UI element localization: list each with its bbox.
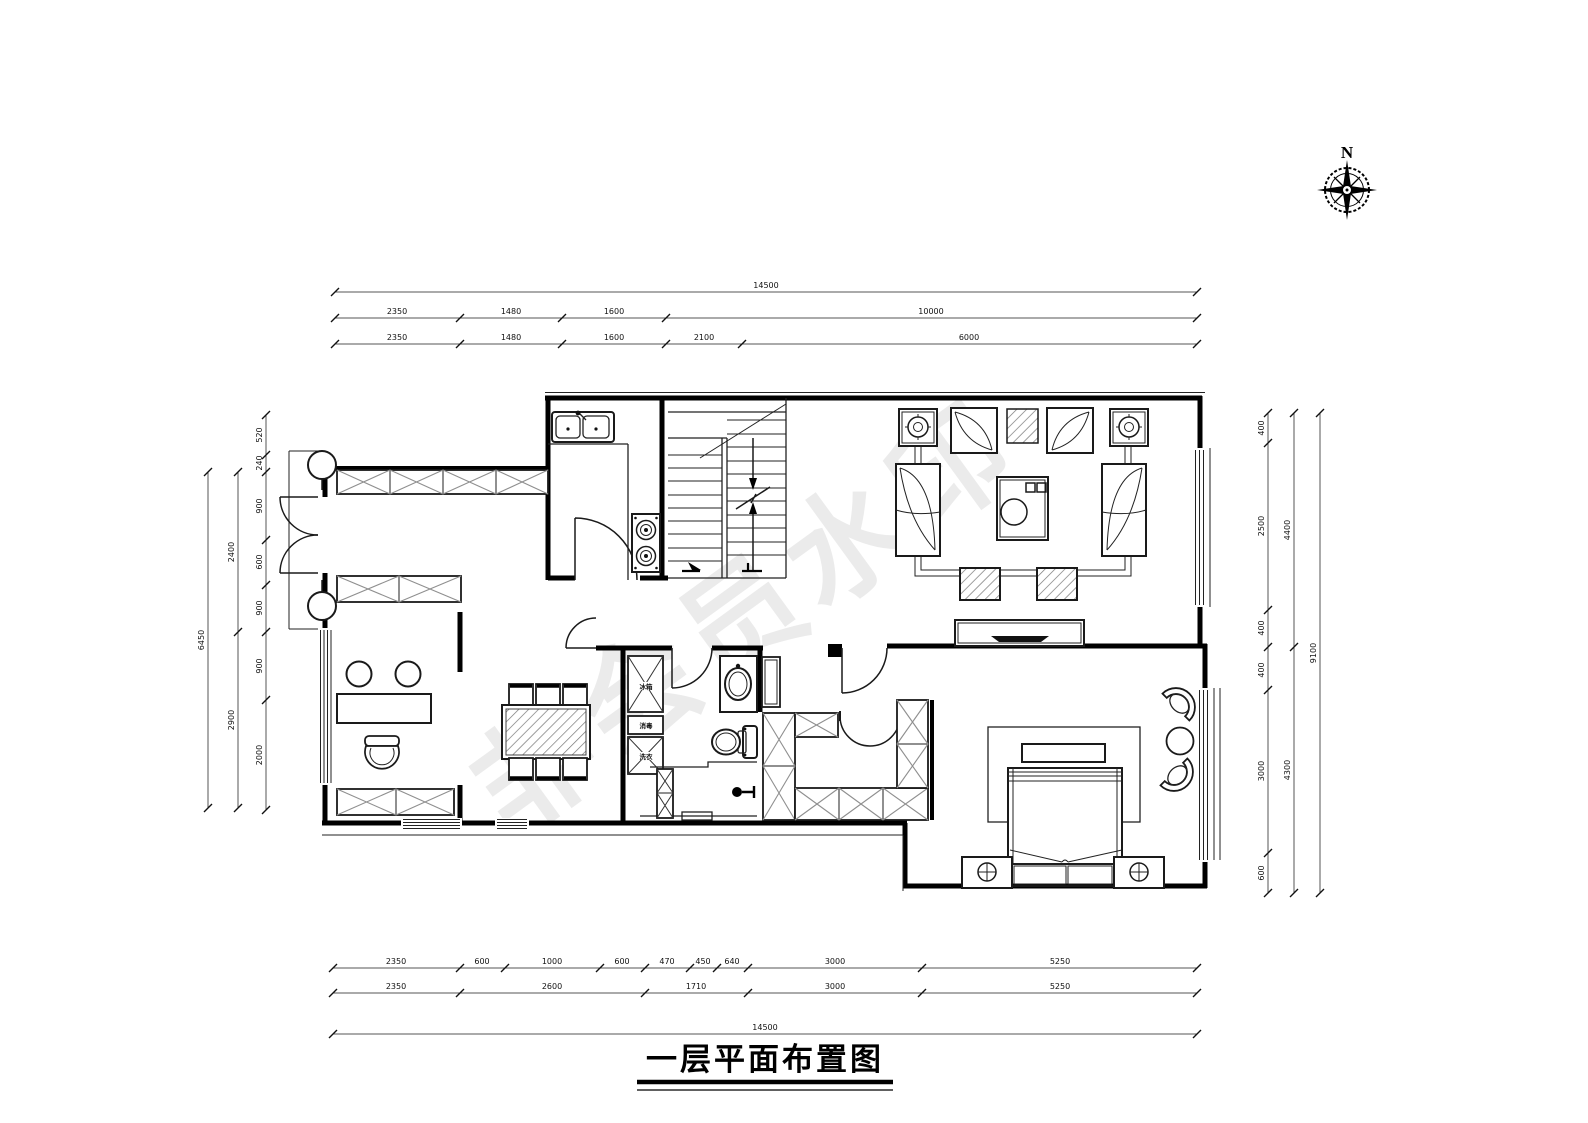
bedroom-door xyxy=(842,648,887,693)
svg-text:4300: 4300 xyxy=(1283,760,1292,780)
svg-text:240: 240 xyxy=(255,455,264,470)
guest-chair-2 xyxy=(396,662,421,687)
svg-text:5250: 5250 xyxy=(1050,957,1070,966)
svg-text:1480: 1480 xyxy=(501,333,521,342)
office-wardrobe xyxy=(337,789,454,815)
svg-text:2350: 2350 xyxy=(386,957,406,966)
svg-text:2350: 2350 xyxy=(387,333,407,342)
shower-head-icon xyxy=(732,787,742,797)
svg-text:3000: 3000 xyxy=(825,957,845,966)
bed-foot-bench xyxy=(1022,744,1105,762)
svg-text:2900: 2900 xyxy=(227,710,236,730)
column-bottom xyxy=(308,592,336,620)
bedroom-armchair-2 xyxy=(1158,756,1200,798)
entry-cabinet-bottom xyxy=(337,576,461,602)
svg-text:470: 470 xyxy=(659,957,674,966)
dining-chairs-top xyxy=(509,684,587,706)
svg-text:1600: 1600 xyxy=(604,333,624,342)
chaise-left xyxy=(896,464,940,556)
svg-text:14500: 14500 xyxy=(752,1023,777,1032)
corner-table-left xyxy=(899,409,937,446)
washbasin xyxy=(720,656,757,712)
svg-text:9100: 9100 xyxy=(1309,643,1318,663)
shower-area xyxy=(640,762,757,820)
kitchen-stove xyxy=(632,514,660,572)
svg-text:900: 900 xyxy=(255,498,264,513)
dim-right: 400 2500 400 400 3000 600 4400 4300 9100 xyxy=(1257,409,1324,897)
svg-text:520: 520 xyxy=(255,427,264,442)
bedroom-armchair-1 xyxy=(1160,680,1202,722)
dim-bottom: 2350 600 1000 600 470 450 640 3000 5250 … xyxy=(329,957,1201,1038)
appliance-label-bottom: 洗衣 xyxy=(640,752,654,761)
svg-text:4400: 4400 xyxy=(1283,520,1292,540)
dim-top: 14500 2350 1480 1600 10000 2350 1480 160… xyxy=(331,281,1201,348)
svg-text:5250: 5250 xyxy=(1050,982,1070,991)
dining-room xyxy=(502,684,590,780)
hall-door xyxy=(566,618,596,648)
dim-left: 520 240 900 600 900 900 2000 2400 2900 6… xyxy=(197,411,270,814)
office-chair xyxy=(365,736,399,769)
svg-text:2350: 2350 xyxy=(386,982,406,991)
svg-text:6000: 6000 xyxy=(959,333,979,342)
living-room xyxy=(896,408,1148,646)
svg-text:2600: 2600 xyxy=(542,982,562,991)
walk-in-closet xyxy=(763,700,928,820)
bed xyxy=(1008,768,1122,864)
appliance-label-mid: 消毒 xyxy=(640,721,654,730)
appliance-label-top: 冰箱 xyxy=(640,682,654,691)
svg-text:10000: 10000 xyxy=(918,307,943,316)
svg-text:600: 600 xyxy=(614,957,629,966)
window-bedroom-east xyxy=(1198,688,1212,862)
tv-cabinet xyxy=(955,620,1084,646)
svg-text:900: 900 xyxy=(255,658,264,673)
svg-text:2500: 2500 xyxy=(1257,516,1266,536)
office xyxy=(337,662,454,816)
sofa-seat-1 xyxy=(951,408,997,453)
closet-double-door xyxy=(840,711,900,746)
desk xyxy=(337,694,431,723)
svg-text:1480: 1480 xyxy=(501,307,521,316)
entry-double-door xyxy=(280,497,318,573)
ottoman-2 xyxy=(1037,568,1077,600)
svg-text:1600: 1600 xyxy=(604,307,624,316)
svg-text:400: 400 xyxy=(1257,620,1266,635)
svg-text:400: 400 xyxy=(1257,662,1266,677)
floor-plan-canvas: 非会员水印 N xyxy=(0,0,1588,1123)
entry-cabinet-top xyxy=(337,470,548,494)
svg-text:2400: 2400 xyxy=(227,542,236,562)
compass-north-label: N xyxy=(1341,143,1354,162)
guest-chair-1 xyxy=(347,662,372,687)
nightstand-right xyxy=(1114,857,1164,888)
svg-text:640: 640 xyxy=(724,957,739,966)
nightstand-left xyxy=(962,857,1012,888)
svg-text:2100: 2100 xyxy=(694,333,714,342)
svg-text:3000: 3000 xyxy=(1257,761,1266,781)
svg-text:1710: 1710 xyxy=(686,982,706,991)
svg-text:600: 600 xyxy=(474,957,489,966)
drawing-title: 一层平面布置图 xyxy=(646,1042,884,1077)
kitchen-sink xyxy=(552,411,614,442)
title-block: 一层平面布置图 xyxy=(637,1042,893,1090)
coffee-table xyxy=(997,477,1048,540)
kitchen xyxy=(548,411,660,580)
svg-text:2000: 2000 xyxy=(255,745,264,765)
svg-text:14500: 14500 xyxy=(753,281,778,290)
svg-text:450: 450 xyxy=(695,957,710,966)
ottoman-1 xyxy=(960,568,1000,600)
entry-hall xyxy=(308,451,548,620)
bedroom xyxy=(962,680,1203,888)
column-top xyxy=(308,451,336,479)
svg-text:900: 900 xyxy=(255,600,264,615)
sofa-cushion xyxy=(1007,409,1038,443)
dining-chairs-bottom xyxy=(509,758,587,780)
floor-plan-page: 非会员水印 N xyxy=(0,0,1588,1123)
sofa-seat-2 xyxy=(1047,408,1093,453)
svg-text:1000: 1000 xyxy=(542,957,562,966)
corner-table-right xyxy=(1110,409,1148,446)
toilet xyxy=(712,726,757,758)
svg-text:600: 600 xyxy=(1257,865,1266,880)
dining-table xyxy=(502,705,590,759)
svg-text:400: 400 xyxy=(1257,420,1266,435)
svg-text:2350: 2350 xyxy=(387,307,407,316)
svg-text:3000: 3000 xyxy=(825,982,845,991)
chaise-right xyxy=(1102,464,1146,556)
svg-text:6450: 6450 xyxy=(197,630,206,650)
svg-text:600: 600 xyxy=(255,554,264,569)
compass-rose-icon: N xyxy=(1317,143,1377,220)
tv-icon xyxy=(991,636,1049,642)
side-table xyxy=(1167,728,1194,755)
